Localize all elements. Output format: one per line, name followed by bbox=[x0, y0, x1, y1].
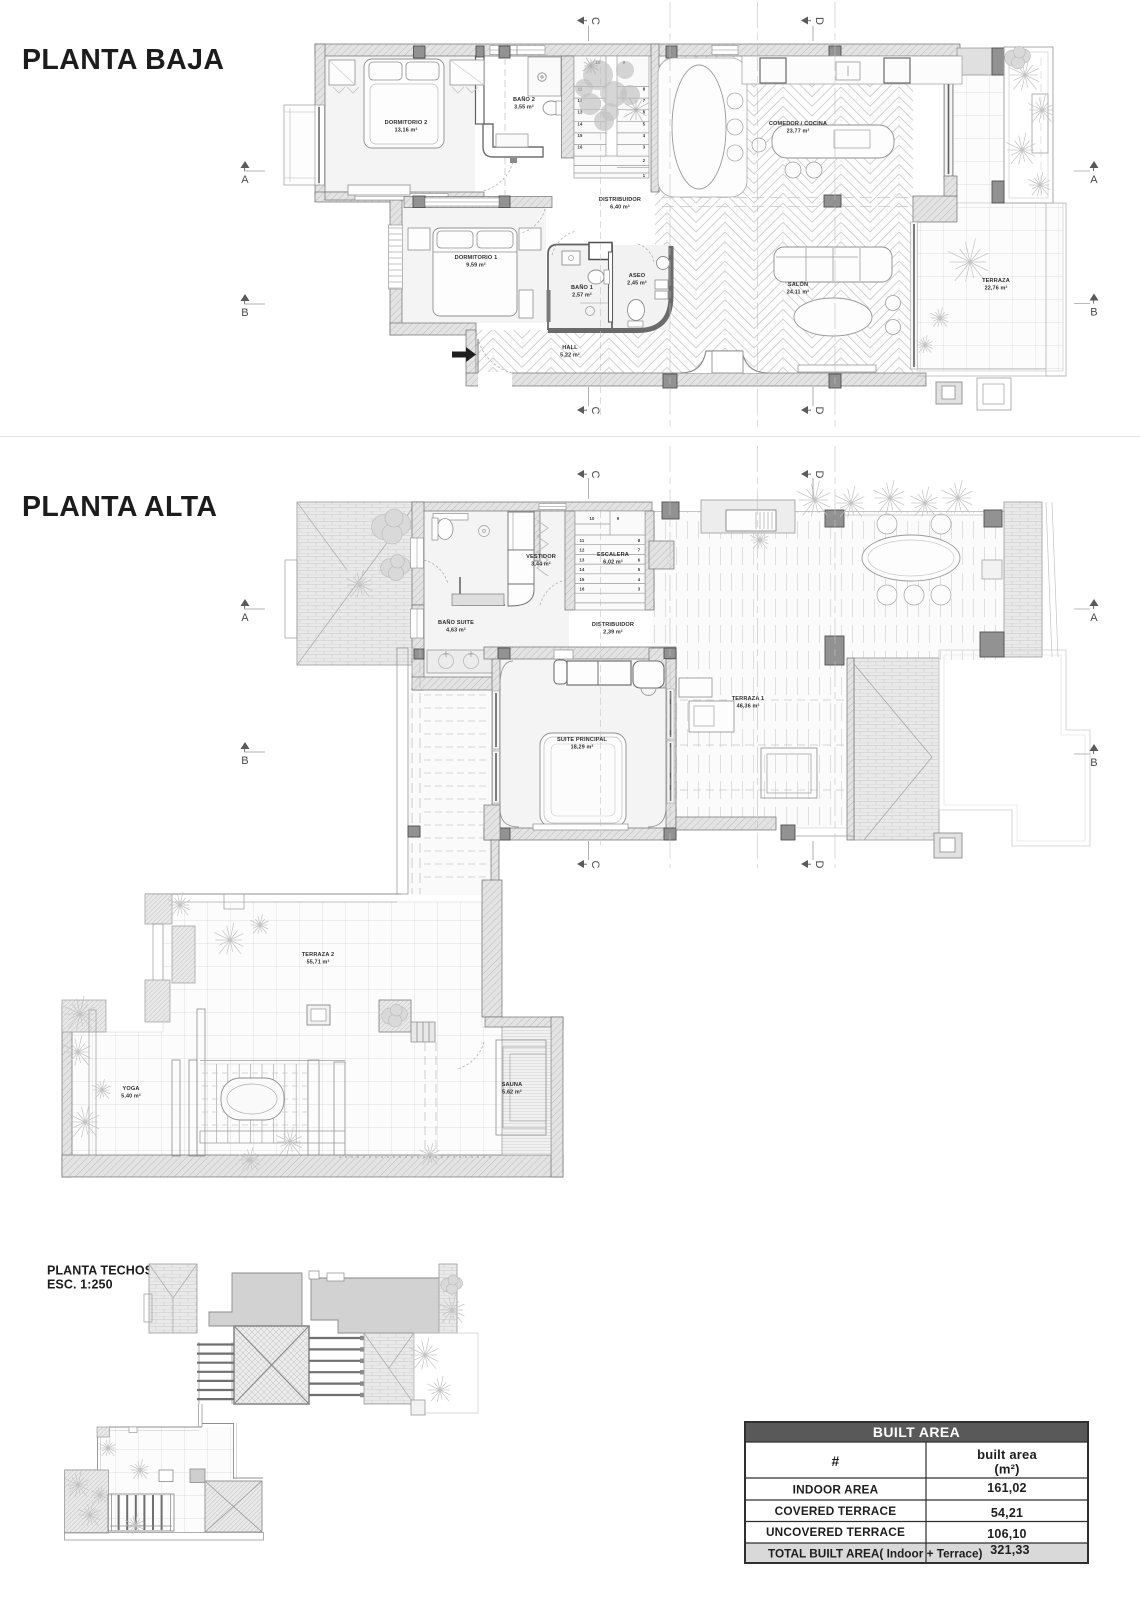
svg-text:55,71 m²: 55,71 m² bbox=[307, 960, 330, 966]
svg-text:11: 11 bbox=[580, 538, 585, 543]
svg-text:B: B bbox=[1090, 757, 1098, 769]
svg-text:22,76 m²: 22,76 m² bbox=[985, 286, 1008, 292]
svg-text:10: 10 bbox=[589, 516, 595, 521]
svg-text:18,29 m²: 18,29 m² bbox=[571, 745, 594, 751]
svg-text:B: B bbox=[241, 755, 249, 767]
svg-text:SALÓN: SALÓN bbox=[788, 280, 808, 288]
svg-text:9,59 m²: 9,59 m² bbox=[466, 263, 486, 269]
svg-text:HALL: HALL bbox=[562, 345, 578, 351]
svg-text:DISTRIBUIDOR: DISTRIBUIDOR bbox=[599, 197, 641, 203]
svg-text:INDOOR AREA: INDOOR AREA bbox=[793, 1483, 879, 1497]
svg-text:C: C bbox=[589, 861, 601, 869]
svg-text:B: B bbox=[241, 307, 249, 319]
svg-text:PLANTA ALTA: PLANTA ALTA bbox=[22, 491, 217, 523]
svg-text:DORMITORIO 1: DORMITORIO 1 bbox=[455, 255, 498, 261]
svg-text:2,57 m²: 2,57 m² bbox=[572, 293, 592, 299]
svg-text:13,16 m²: 13,16 m² bbox=[395, 128, 418, 134]
svg-text:5,22 m²: 5,22 m² bbox=[560, 353, 580, 359]
svg-text:D: D bbox=[813, 471, 825, 479]
svg-text:6,40 m²: 6,40 m² bbox=[610, 205, 630, 211]
svg-text:TOTAL BUILT AREA( Indoor + Ter: TOTAL BUILT AREA( Indoor + Terrace) bbox=[768, 1547, 983, 1561]
svg-text:built area: built area bbox=[977, 1447, 1037, 1462]
svg-text:3,44 m²: 3,44 m² bbox=[531, 562, 551, 568]
svg-text:SAUNA: SAUNA bbox=[502, 1082, 523, 1088]
svg-text:15: 15 bbox=[579, 577, 585, 582]
svg-text:C: C bbox=[589, 471, 601, 479]
svg-text:PLANTA TECHOS: PLANTA TECHOS bbox=[47, 1264, 153, 1278]
svg-text:4,63 m²: 4,63 m² bbox=[446, 628, 466, 634]
svg-text:ASEO: ASEO bbox=[629, 273, 646, 279]
svg-text:D: D bbox=[813, 407, 825, 415]
svg-text:DORMITORIO 2: DORMITORIO 2 bbox=[385, 120, 428, 126]
svg-text:46,36 m²: 46,36 m² bbox=[737, 704, 760, 710]
svg-text:D: D bbox=[813, 17, 825, 25]
svg-text:DISTRIBUIDOR: DISTRIBUIDOR bbox=[592, 622, 634, 628]
svg-text:6,02 m²: 6,02 m² bbox=[603, 560, 623, 566]
svg-text:5,40 m²: 5,40 m² bbox=[121, 1094, 141, 1100]
svg-text:14: 14 bbox=[579, 567, 585, 572]
svg-text:BAÑO 1: BAÑO 1 bbox=[571, 284, 593, 291]
svg-text:#: # bbox=[832, 1453, 840, 1469]
svg-text:PLANTA BAJA: PLANTA BAJA bbox=[22, 44, 224, 76]
svg-text:B: B bbox=[1090, 307, 1098, 319]
svg-text:16: 16 bbox=[577, 145, 583, 150]
svg-text:ESC. 1:250: ESC. 1:250 bbox=[47, 1278, 113, 1292]
svg-text:A: A bbox=[1090, 174, 1098, 186]
svg-text:14: 14 bbox=[577, 121, 583, 126]
svg-text:5,62 m²: 5,62 m² bbox=[502, 1090, 522, 1096]
svg-text:C: C bbox=[589, 407, 601, 415]
svg-text:23,77 m²: 23,77 m² bbox=[787, 129, 810, 135]
svg-text:321,33: 321,33 bbox=[990, 1543, 1029, 1557]
svg-text:12: 12 bbox=[579, 548, 585, 553]
svg-text:BAÑO 2: BAÑO 2 bbox=[513, 96, 535, 103]
svg-text:13: 13 bbox=[579, 557, 585, 562]
svg-text:A: A bbox=[1090, 612, 1098, 624]
svg-text:BAÑO SUITE: BAÑO SUITE bbox=[438, 619, 474, 626]
svg-text:TERRAZA 2: TERRAZA 2 bbox=[302, 952, 335, 958]
svg-text:3,55 m²: 3,55 m² bbox=[514, 105, 534, 111]
svg-text:16: 16 bbox=[579, 587, 585, 592]
svg-text:(m²): (m²) bbox=[994, 1462, 1019, 1477]
svg-text:YOGA: YOGA bbox=[122, 1086, 139, 1092]
svg-text:2,45 m²: 2,45 m² bbox=[627, 281, 647, 287]
svg-text:COMEDOR / COCINA: COMEDOR / COCINA bbox=[769, 121, 827, 127]
svg-text:54,21: 54,21 bbox=[991, 1506, 1023, 1520]
svg-text:A: A bbox=[241, 174, 249, 186]
svg-text:2,39 m²: 2,39 m² bbox=[603, 630, 623, 636]
svg-text:106,10: 106,10 bbox=[987, 1527, 1026, 1541]
svg-text:BUILT AREA: BUILT AREA bbox=[873, 1424, 960, 1440]
svg-text:SUITE PRINCIPAL: SUITE PRINCIPAL bbox=[557, 737, 607, 743]
svg-text:TERRAZA: TERRAZA bbox=[982, 278, 1010, 284]
svg-text:C: C bbox=[589, 17, 601, 25]
svg-text:161,02: 161,02 bbox=[987, 1481, 1026, 1495]
svg-text:A: A bbox=[241, 612, 249, 624]
svg-text:D: D bbox=[813, 861, 825, 869]
svg-text:UNCOVERED TERRACE: UNCOVERED TERRACE bbox=[766, 1525, 905, 1539]
svg-text:COVERED TERRACE: COVERED TERRACE bbox=[775, 1504, 897, 1518]
svg-text:24,11 m²: 24,11 m² bbox=[787, 290, 810, 296]
svg-text:VESTIDOR: VESTIDOR bbox=[526, 554, 556, 560]
svg-text:ESCALERA: ESCALERA bbox=[597, 552, 629, 558]
svg-text:TERRAZA 1: TERRAZA 1 bbox=[732, 696, 765, 702]
svg-text:15: 15 bbox=[577, 133, 583, 138]
